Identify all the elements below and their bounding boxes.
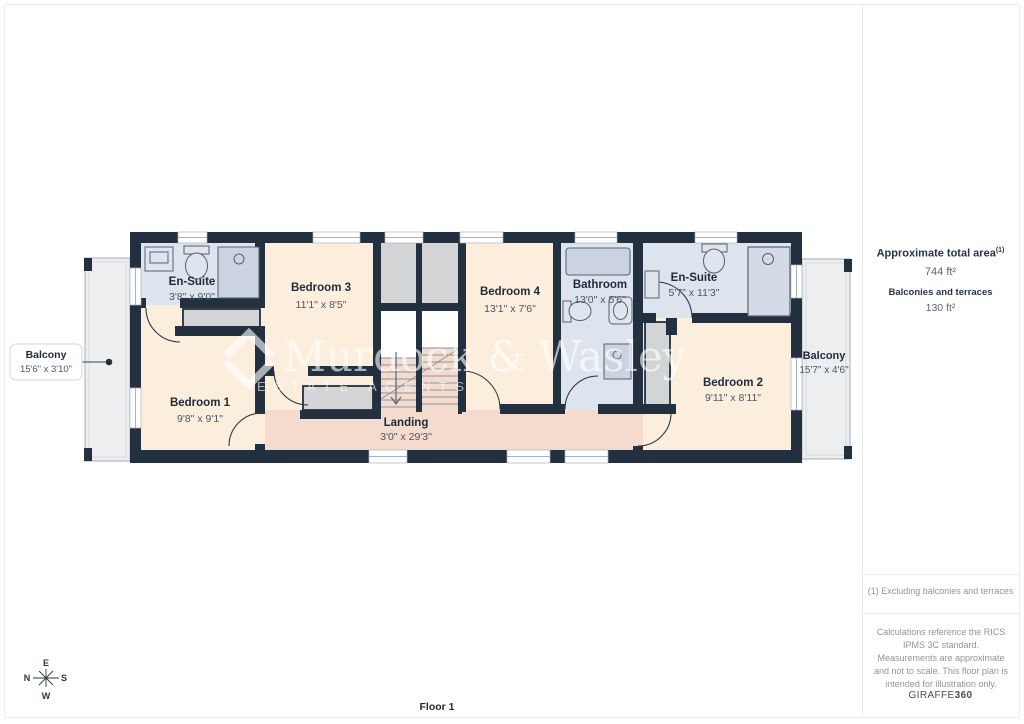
svg-text:Balcony: Balcony [803,350,847,362]
svg-text:13'1" x 7'6": 13'1" x 7'6" [484,303,536,315]
floor-label: Floor 1 [419,701,454,713]
callout-dot [106,359,113,366]
svg-text:Bedroom 4: Bedroom 4 [480,286,541,298]
balconies-label: Balconies and terraces [862,287,1019,298]
brand-logo: GIRAFFE360 [862,690,1019,701]
svg-text:Bedroom 1: Bedroom 1 [170,397,231,409]
svg-text:15'7" x 4'6": 15'7" x 4'6" [799,365,849,376]
svg-text:Landing: Landing [384,417,429,429]
svg-text:E: E [43,658,49,668]
balconies-value: 130 ft² [862,302,1019,314]
svg-text:3'8" x 9'0": 3'8" x 9'0" [169,291,215,303]
svg-text:11'1" x 8'5": 11'1" x 8'5" [296,299,347,311]
svg-text:N: N [24,673,31,683]
floorplan-canvas: Murdock & Wasley ESTATE AGENTS En-Suite … [0,0,1024,724]
watermark-name: Murdock & Wasley [283,332,687,381]
svg-text:Bathroom: Bathroom [573,279,627,291]
svg-text:9'8" x 9'1": 9'8" x 9'1" [177,413,223,425]
svg-text:Bedroom 2: Bedroom 2 [703,377,763,389]
svg-text:9'11" x 8'11": 9'11" x 8'11" [705,392,761,404]
compass-rose: E N S W [24,658,67,701]
svg-text:15'6" x 3'10": 15'6" x 3'10" [20,364,72,375]
disclaimer: Calculations reference the RICS IPMS 3C … [872,626,1010,691]
svg-text:S: S [61,673,67,683]
footnote-marker: (1) [996,247,1005,254]
svg-text:W: W [42,691,51,701]
watermark-tagline: ESTATE AGENTS [257,379,472,394]
footnote: (1) Excluding balconies and terraces [862,586,1019,596]
svg-text:5'7" x 11'3": 5'7" x 11'3" [669,287,720,299]
total-area-label: Approximate total area(1) [862,247,1019,260]
svg-text:Balcony: Balcony [26,349,67,361]
svg-text:En-Suite: En-Suite [671,272,718,284]
svg-text:Bedroom 3: Bedroom 3 [291,282,351,294]
svg-text:13'0" x 5'6": 13'0" x 5'6" [574,294,626,306]
floorplan-page: Murdock & Wasley ESTATE AGENTS En-Suite … [0,0,1024,724]
svg-text:En-Suite: En-Suite [169,276,216,288]
svg-text:3'0" x 29'3": 3'0" x 29'3" [380,431,432,443]
total-area-value: 744 ft² [862,266,1019,278]
